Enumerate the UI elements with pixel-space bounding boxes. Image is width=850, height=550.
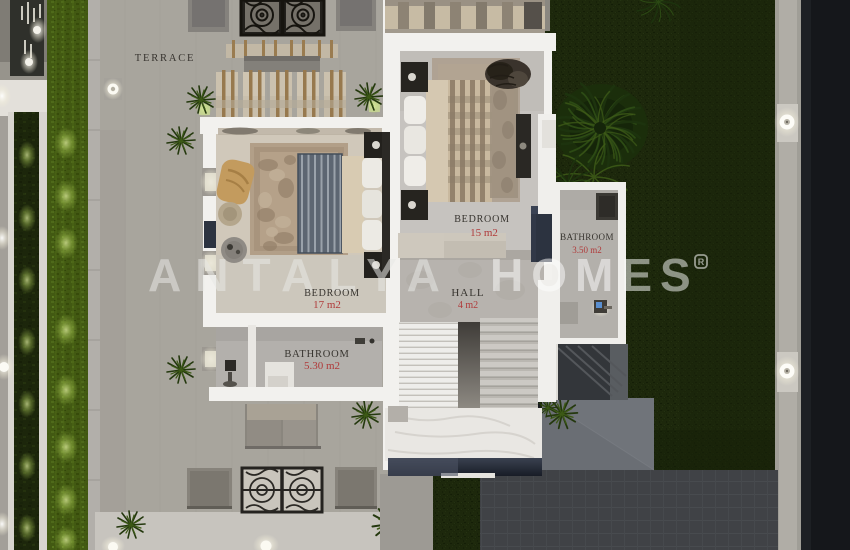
svg-text:3.50 m2: 3.50 m2: [572, 245, 602, 255]
svg-text:ANTALYA: ANTALYA: [148, 249, 454, 301]
svg-text:HALL: HALL: [451, 287, 484, 299]
svg-text:BEDROOM: BEDROOM: [304, 288, 360, 299]
svg-text:5.30 m2: 5.30 m2: [304, 360, 340, 372]
svg-text:BATHROOM: BATHROOM: [284, 349, 349, 360]
svg-text:BEDROOM: BEDROOM: [454, 214, 510, 225]
svg-text:TERRACE: TERRACE: [135, 53, 195, 64]
svg-text:HOMES: HOMES: [490, 249, 699, 301]
svg-text:15 m2: 15 m2: [470, 227, 498, 239]
svg-text:R: R: [698, 257, 705, 267]
svg-text:4 m2: 4 m2: [458, 300, 478, 311]
svg-text:BATHROOM: BATHROOM: [560, 232, 614, 242]
svg-text:17 m2: 17 m2: [313, 299, 341, 311]
